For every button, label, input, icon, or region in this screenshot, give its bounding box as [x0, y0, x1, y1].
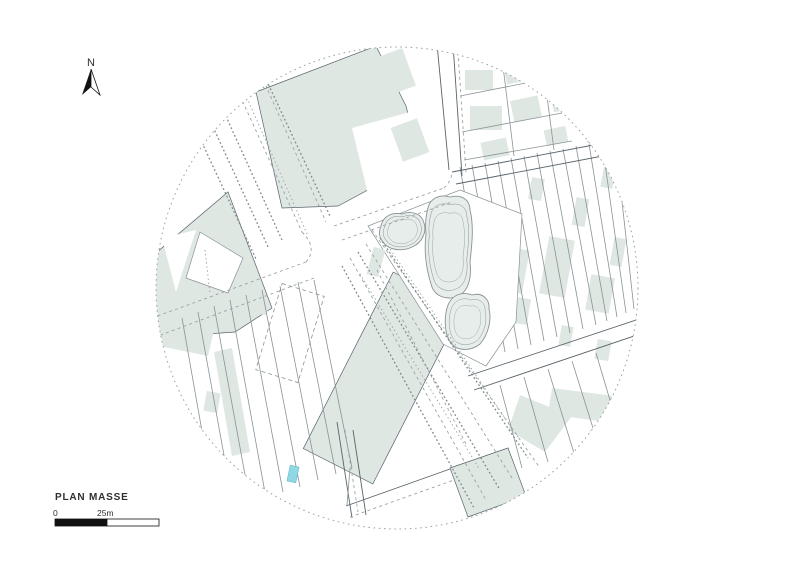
road-centerline	[458, 52, 466, 172]
street-edge	[437, 44, 449, 170]
building	[450, 448, 526, 517]
building	[544, 126, 569, 146]
building	[610, 237, 627, 267]
title-block: PLAN MASSE 0 25m	[53, 492, 159, 526]
building	[367, 247, 386, 277]
site-plan-drawing: N PLAN MASSE 0 25m	[0, 0, 800, 565]
building	[480, 137, 509, 160]
building	[203, 391, 220, 413]
street-edge	[452, 138, 630, 172]
scale-zero-label: 0	[53, 508, 58, 518]
drawing-title: PLAN MASSE	[55, 492, 129, 503]
building	[510, 95, 542, 122]
building	[599, 144, 617, 159]
plan-circle-content	[150, 44, 640, 518]
building	[594, 339, 611, 361]
building	[503, 61, 532, 84]
building	[539, 76, 566, 97]
north-label: N	[87, 57, 95, 69]
north-arrow-right-half	[91, 69, 100, 95]
kerb-arc	[444, 172, 452, 188]
building	[584, 430, 622, 464]
building	[584, 110, 605, 127]
street-edge	[453, 44, 462, 176]
north-arrow-left-half	[82, 69, 91, 95]
site-plan-page: N PLAN MASSE 0 25m	[0, 0, 800, 565]
scale-mid-label: 25m	[97, 508, 114, 518]
building	[470, 106, 502, 130]
scale-bar	[55, 519, 159, 526]
north-arrow-icon: N	[82, 57, 100, 95]
parcel-line	[464, 141, 572, 160]
kerb-arc	[302, 232, 311, 262]
scale-bar-filled-segment	[55, 519, 107, 526]
scale-bar-open-segment	[107, 519, 159, 526]
parcel-line	[578, 72, 588, 142]
pool	[287, 465, 299, 483]
northeast-block-cluster	[460, 58, 617, 161]
building	[465, 70, 493, 90]
building	[572, 197, 590, 227]
building	[550, 90, 577, 113]
